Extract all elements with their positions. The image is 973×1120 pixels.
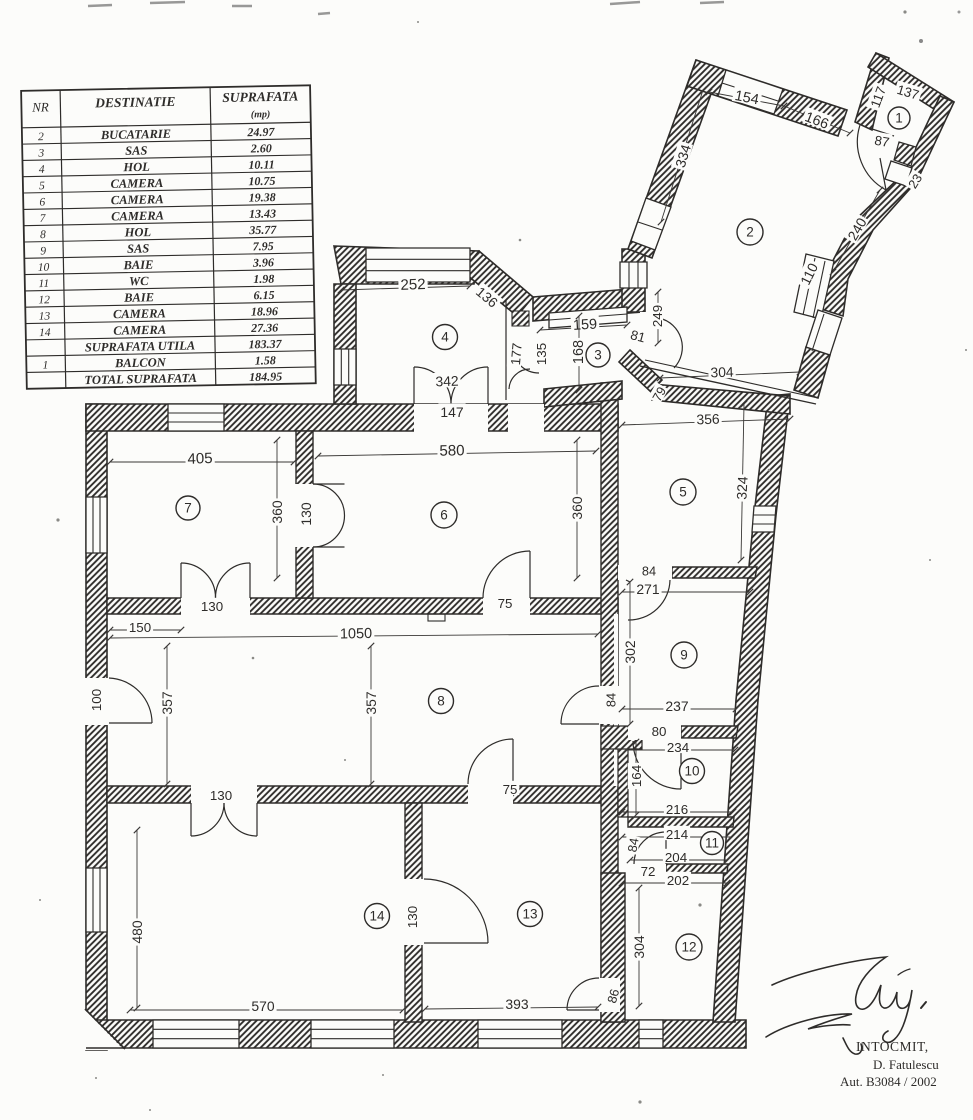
svg-text:CAMERA: CAMERA [111,192,164,207]
svg-text:234: 234 [667,740,690,755]
svg-text:BAIE: BAIE [123,290,154,305]
svg-text:5: 5 [39,180,45,192]
svg-text:1.58: 1.58 [255,353,276,367]
svg-text:580: 580 [439,442,464,459]
svg-text:100: 100 [89,689,104,711]
svg-text:3: 3 [594,348,602,363]
svg-text:164: 164 [629,764,644,787]
svg-text:11: 11 [38,278,49,290]
svg-text:9: 9 [680,648,688,663]
svg-text:35.77: 35.77 [248,223,277,238]
svg-text:CAMERA: CAMERA [113,306,166,321]
svg-text:130: 130 [210,788,232,803]
svg-text:2: 2 [746,225,754,240]
svg-text:SAS: SAS [127,241,150,255]
svg-text:BUCATARIE: BUCATARIE [100,127,171,142]
svg-text:2: 2 [38,131,44,143]
svg-text:12: 12 [38,294,50,306]
svg-text:84: 84 [604,693,619,707]
svg-text:2.60: 2.60 [250,141,272,155]
svg-text:6: 6 [39,196,45,208]
svg-text:3.96: 3.96 [252,255,274,269]
svg-text:10: 10 [684,764,699,779]
svg-text:BALCON: BALCON [114,355,167,370]
svg-text:HOL: HOL [122,160,150,175]
svg-text:HOL: HOL [124,225,152,240]
svg-text:9: 9 [40,245,46,257]
svg-text:84: 84 [624,837,641,854]
svg-text:6: 6 [440,508,448,523]
svg-text:24.97: 24.97 [246,125,275,140]
svg-text:13.43: 13.43 [249,206,276,221]
svg-text:13: 13 [39,311,51,323]
svg-text:405: 405 [187,450,213,468]
svg-text:324: 324 [733,476,750,500]
svg-text:12: 12 [681,940,696,955]
svg-text:11: 11 [705,836,719,851]
svg-text:130: 130 [201,599,223,614]
svg-text:168: 168 [571,340,587,364]
svg-text:271: 271 [636,581,659,597]
svg-text:1050: 1050 [340,626,373,643]
svg-text:D. Fatulescu: D. Fatulescu [873,1057,939,1072]
svg-text:1: 1 [895,111,903,126]
svg-text:SUPRAFATA: SUPRAFATA [222,89,298,105]
svg-text:249: 249 [650,305,665,327]
svg-text:8: 8 [40,229,46,241]
svg-text:177: 177 [508,342,525,365]
svg-text:1: 1 [42,360,48,372]
svg-text:342: 342 [435,373,459,390]
svg-text:14: 14 [39,327,51,339]
svg-text:10.11: 10.11 [248,157,275,172]
svg-text:1.98: 1.98 [253,272,274,286]
svg-text:75: 75 [498,596,513,611]
svg-text:84: 84 [642,564,656,579]
svg-text:360: 360 [569,496,585,519]
svg-text:10.75: 10.75 [248,174,275,189]
svg-text:BAIE: BAIE [122,258,153,273]
svg-text:13: 13 [522,907,537,922]
svg-text:18.96: 18.96 [251,304,278,319]
svg-text:147: 147 [440,404,463,420]
svg-text:27.36: 27.36 [250,321,278,336]
svg-text:216: 216 [666,802,688,817]
svg-text:304: 304 [631,935,647,958]
svg-text:357: 357 [363,691,379,714]
svg-text:75: 75 [503,782,518,797]
svg-text:10: 10 [38,262,50,274]
svg-text:7.95: 7.95 [253,239,274,253]
svg-text:CAMERA: CAMERA [113,323,166,338]
svg-text:(mp): (mp) [251,109,271,120]
svg-text:150: 150 [129,620,151,635]
svg-text:357: 357 [159,691,175,714]
svg-text:135: 135 [534,343,549,365]
svg-text:183.37: 183.37 [248,337,282,352]
svg-text:4: 4 [441,330,449,345]
svg-text:SUPRAFATA UTILA: SUPRAFATA UTILA [85,338,196,354]
svg-text:14: 14 [369,909,385,924]
svg-text:204: 204 [665,850,688,865]
svg-text:4: 4 [39,164,45,176]
svg-text:DESTINATIE: DESTINATIE [94,94,176,111]
svg-text:130: 130 [298,502,314,525]
svg-text:CAMERA: CAMERA [110,176,163,191]
svg-text:TOTAL SUPRAFATA: TOTAL SUPRAFATA [84,371,197,387]
svg-text:72: 72 [641,864,656,879]
svg-text:87: 87 [873,133,890,150]
svg-text:393: 393 [505,996,528,1012]
svg-text:NR: NR [31,99,49,114]
svg-text:SAS: SAS [125,144,148,158]
svg-text:Aut. B3084 / 2002: Aut. B3084 / 2002 [840,1074,937,1089]
svg-text:360: 360 [269,500,285,523]
svg-text:3: 3 [37,147,44,159]
svg-text:WC: WC [129,274,149,288]
svg-text:304: 304 [710,364,734,381]
svg-text:19.38: 19.38 [249,190,276,205]
svg-text:302: 302 [622,640,638,663]
svg-text:CAMERA: CAMERA [111,209,164,224]
svg-text:6.15: 6.15 [253,288,274,302]
svg-text:130: 130 [405,906,420,928]
svg-text:184.95: 184.95 [249,369,282,384]
svg-text:480: 480 [129,920,145,943]
svg-text:8: 8 [437,694,445,709]
svg-text:80: 80 [652,724,667,739]
svg-text:356: 356 [696,411,720,428]
svg-text:202: 202 [667,873,689,888]
svg-text:570: 570 [251,998,274,1014]
svg-text:5: 5 [679,485,687,500]
svg-text:7: 7 [184,501,192,516]
svg-text:INTOCMIT,: INTOCMIT, [856,1039,929,1054]
svg-text:252: 252 [400,276,426,294]
svg-text:237: 237 [665,698,688,714]
svg-text:214: 214 [666,827,689,842]
